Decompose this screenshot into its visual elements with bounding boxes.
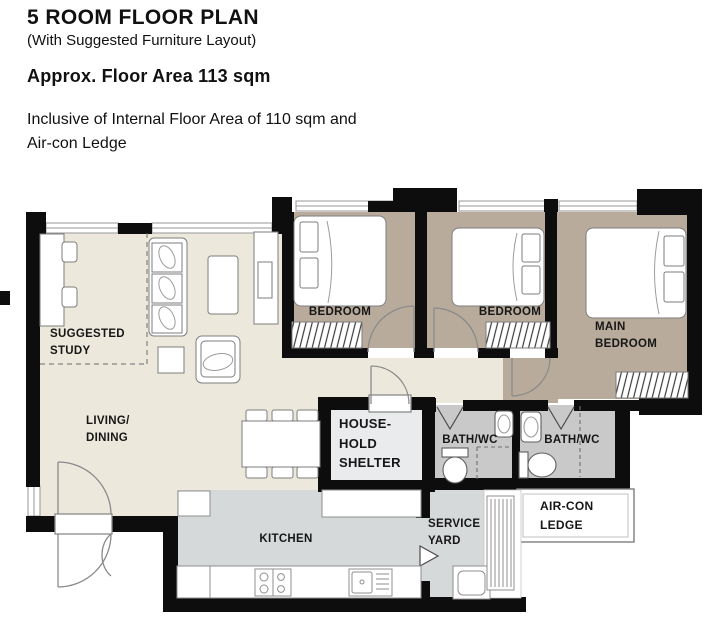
ladder — [487, 496, 514, 590]
bedroom2-wardrobe — [486, 322, 550, 348]
label-bath-wc-2: BATH/WC — [534, 432, 610, 449]
fridge — [178, 491, 210, 516]
washing-machine — [453, 566, 490, 599]
dining-set — [242, 410, 320, 478]
dining-table — [242, 421, 320, 467]
label-bath-wc-1: BATH/WC — [432, 432, 508, 449]
bedroom2-bed — [452, 228, 544, 306]
study-chair — [62, 287, 77, 307]
label-household-shelter: HOUSE- HOLD SHELTER — [339, 414, 401, 473]
label-living-dining: LIVING/ DINING — [86, 413, 130, 446]
main-bedroom-bed — [586, 228, 686, 318]
study-chair — [62, 242, 77, 262]
floor-plan-page: 5 ROOM FLOOR PLAN (With Suggested Furnit… — [0, 0, 720, 623]
bedroom1-bed — [294, 216, 386, 306]
entrance-door-frame — [55, 514, 112, 534]
bedroom1-wardrobe — [292, 322, 362, 348]
shelter-door-frame — [369, 395, 411, 412]
study-desk — [40, 234, 64, 326]
tv — [258, 262, 272, 298]
coffee-table — [208, 256, 238, 314]
label-service-yard: SERVICE YARD — [428, 516, 480, 549]
bath1-toilet — [442, 448, 468, 483]
stove — [255, 569, 291, 596]
label-bedroom-1: BEDROOM — [300, 304, 380, 321]
label-suggested-study: SUGGESTED STUDY — [50, 326, 125, 359]
label-kitchen: KITCHEN — [245, 531, 327, 548]
side-table — [158, 347, 184, 373]
bath2-toilet — [519, 452, 556, 478]
main-bedroom-wardrobe — [616, 372, 688, 398]
label-main-bedroom: MAIN BEDROOM — [595, 319, 657, 352]
kitchen-sink — [349, 569, 392, 596]
shelter-counter — [322, 490, 421, 517]
label-aircon-ledge: AIR-CON LEDGE — [540, 497, 593, 534]
armchair — [196, 336, 240, 383]
sofa — [149, 238, 187, 336]
label-bedroom-2: BEDROOM — [470, 304, 550, 321]
